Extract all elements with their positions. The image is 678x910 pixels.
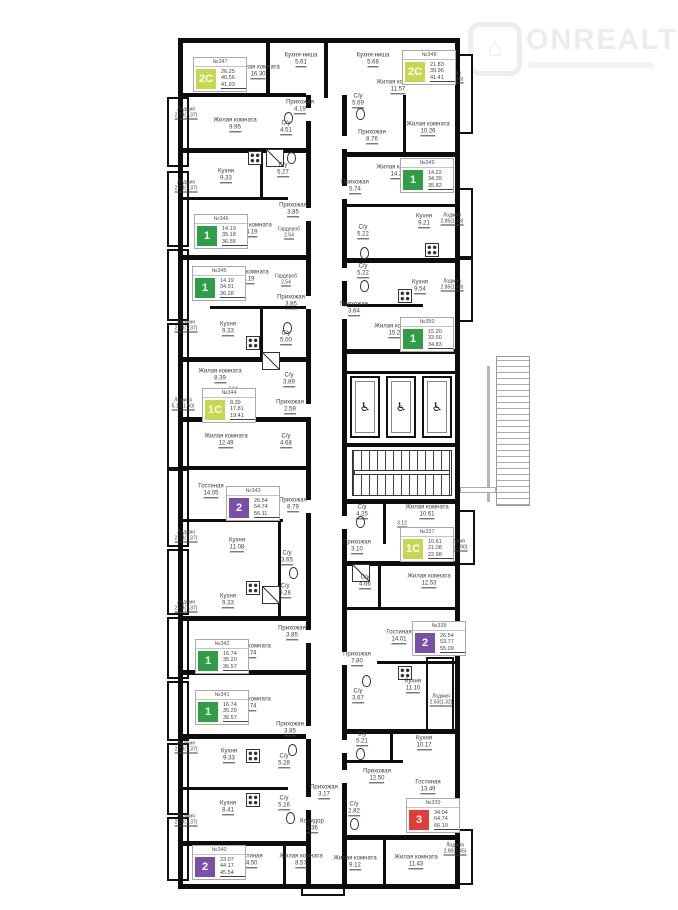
wall (178, 38, 460, 43)
apartment-areas: 14.1935.1836.55 (219, 226, 247, 247)
room-name: С/у (278, 795, 290, 802)
room-name: Кухня (221, 748, 237, 755)
room-area: 4.66 (359, 582, 371, 590)
room-name: С/у (356, 504, 368, 511)
room-name: Кухня (405, 678, 421, 685)
apartment-areas: 26.2540.5641.93 (218, 69, 246, 90)
wall (342, 95, 347, 884)
room-area: 2.59 (284, 407, 296, 415)
room-name: С/у (277, 162, 289, 169)
room-name: Прихожая (341, 179, 369, 186)
apartment-badge[interactable]: №3371С10.6121.0822.98 (400, 527, 454, 562)
door-opening (342, 740, 347, 753)
room-label: Лоджия2.73(1.37) (175, 741, 198, 754)
room-label: Жилая комната8.39 (198, 368, 241, 383)
apartment-areas: 16.7435.2036.57 (220, 651, 248, 672)
room-area: 3.85 (285, 302, 297, 310)
room-area: 8.76 (366, 137, 378, 145)
room-area: 3.65 (281, 558, 293, 566)
room-area: 11.43 (409, 862, 424, 870)
apartment-badge[interactable]: №345114.1934.9136.28 (192, 266, 246, 301)
room-label: Жилая комната9.95 (213, 117, 256, 132)
room-name: Прихожая (276, 721, 304, 728)
room-area: 5.16 (278, 803, 290, 811)
room-label: Прихожая3.10 (343, 539, 371, 554)
room-label: С/у5.21 (356, 731, 368, 746)
apartment-badge[interactable]: №3482С21.8339.9641.41 (402, 50, 456, 85)
room-name: Кухня-ниша (357, 52, 390, 59)
apartment-area-value: 45.54 (220, 870, 245, 878)
room-label: Прихожая3.64 (340, 301, 368, 316)
room-label: Кухня11.08 (229, 537, 245, 552)
apartment-type-badge: 2С (405, 62, 425, 82)
room-area: 5.28 (279, 591, 291, 599)
room-name: С/у (356, 731, 368, 738)
room-name: Гостиная (198, 483, 223, 490)
door-opening (306, 630, 311, 643)
room-area: 2.85(1.43) (441, 219, 464, 226)
room-name: С/у (280, 120, 292, 127)
room-label: Гардероб2.54 (278, 227, 300, 240)
room-name: Жилая комната (333, 855, 376, 862)
toilet-icon (356, 748, 365, 760)
room-name: Прихожая (363, 768, 391, 775)
wall (390, 729, 393, 763)
room-label: Лоджия2.73(1.37) (175, 600, 198, 613)
room-area: 2.73(1.37) (175, 747, 198, 754)
room-area: 2.73(1.37) (175, 820, 198, 827)
room-name: С/у (281, 550, 293, 557)
room-area: 2.73(1.37) (175, 113, 198, 120)
room-area: 5.28 (278, 761, 290, 769)
room-area: 5.69 (352, 101, 364, 109)
room-label: С/у3.65 (281, 550, 293, 565)
room-name: С/у (280, 330, 292, 337)
room-name: С/у (280, 433, 292, 440)
room-area: 3.10 (351, 547, 363, 555)
room-label: С/у5.00 (280, 330, 292, 345)
room-label: Кухня9.33 (220, 593, 236, 608)
apartment-number: №337 (401, 528, 453, 537)
wall (345, 760, 403, 763)
apartment-badge[interactable]: №342116.7435.2036.57 (195, 639, 249, 674)
apartment-badge[interactable]: №339334.0464.7466.19 (406, 798, 460, 833)
room-area: 2.73(1.37) (175, 606, 198, 613)
wall (178, 884, 460, 889)
apartment-area-value: 36.57 (223, 715, 248, 723)
room-area: 9.12 (349, 863, 361, 871)
room-label: Лоджия2.73(1.37) (175, 107, 198, 120)
apartment-areas: 23.0744.1745.54 (217, 857, 245, 878)
room-name: С/у (279, 583, 291, 590)
room-area: 9.33 (220, 176, 232, 184)
apartment-areas: 14.1934.9136.28 (217, 278, 245, 299)
wheelchair-accessible-icon: ♿ (427, 381, 447, 433)
door-opening (306, 726, 311, 739)
wall (183, 616, 306, 621)
apartment-area-value: 35.82 (428, 183, 453, 191)
room-name: Жилая комната (405, 504, 448, 511)
toilet-icon (360, 280, 369, 292)
room-area: 4.68 (280, 441, 292, 449)
room-label: С/у2.82 (348, 801, 360, 816)
apartment-type-badge: 2С (196, 69, 216, 89)
room-name: Кухня-ниша (285, 52, 318, 59)
apartment-areas: 16.7435.2036.57 (220, 702, 248, 723)
room-area: 3.89 (283, 380, 295, 388)
room-name: Прихожая (358, 129, 386, 136)
logo-house-icon: ⌂ (468, 22, 522, 76)
wall (345, 607, 455, 610)
apartment-badge[interactable]: №3441С8.3917.8119.41 (202, 388, 256, 423)
room-label: С/у5.22 (357, 263, 369, 278)
stove-icon (425, 243, 439, 257)
room-name: Прихожая (343, 539, 371, 546)
apartment-areas: 26.5453.7755.09 (437, 633, 465, 654)
room-label: Жилая комната10.26 (406, 121, 449, 136)
apartment-number: №348 (403, 51, 455, 60)
apartment-areas: 21.8339.9641.41 (427, 62, 455, 83)
room-area: 4.25 (356, 512, 368, 520)
room-area: 5.61 (295, 60, 307, 68)
shower-icon (262, 352, 280, 370)
room-name: С/у (283, 372, 295, 379)
apartment-number: №341 (196, 691, 248, 700)
room-label: Лоджия2.63(1.32) (430, 694, 453, 707)
room-name: Прихожая (277, 294, 305, 301)
room-area: 8.57 (295, 861, 307, 869)
wall (183, 148, 306, 153)
room-name: С/у (352, 93, 364, 100)
apartment-area-value: 41.93 (221, 82, 246, 90)
room-area: 2.82 (348, 809, 360, 817)
door-opening (342, 516, 347, 529)
apartment-areas: 26.5454.7456.11 (251, 498, 279, 519)
apartment-type-badge: 1 (198, 702, 218, 722)
room-label: Жилая комната12.49 (204, 433, 247, 448)
room-area: 9.33 (222, 329, 234, 337)
wall (378, 563, 381, 607)
room-area: 8.41 (222, 808, 234, 816)
elevator: ♿ (386, 376, 416, 438)
room-name: Коридор (300, 818, 324, 825)
apartment-areas: 34.0464.7466.19 (431, 810, 459, 831)
room-area: 8.79 (287, 505, 299, 513)
toilet-icon (286, 812, 295, 824)
toilet-icon (289, 567, 298, 579)
room-area: 2.73(1.37) (175, 536, 198, 543)
apartment-area-value: 36.55 (222, 239, 247, 247)
wall (345, 499, 455, 504)
room-name: Кухня (229, 537, 245, 544)
room-name: С/у (357, 263, 369, 270)
room-label: Прихожая3.85 (278, 625, 306, 640)
room-name: С/у (352, 688, 364, 695)
wall (345, 258, 455, 263)
room-label: Прихожая3.85 (277, 294, 305, 309)
room-area: 2.54 (281, 280, 291, 287)
room-area: 12.49 (218, 441, 233, 449)
room-area: 14.01 (391, 637, 406, 645)
room-label: Прихожая3.85 (279, 202, 307, 217)
apartment-badge[interactable]: №3472С26.2540.5641.93 (193, 57, 247, 92)
room-name: С/у (278, 753, 290, 760)
apartment-area-value: 66.19 (434, 823, 459, 831)
room-area: 13.49 (420, 787, 435, 795)
wall (183, 466, 306, 470)
apartment-type-badge: 2 (229, 498, 249, 518)
room-label: Прихожая3.17 (310, 784, 338, 799)
wall (178, 38, 183, 889)
room-name: Прихожая (310, 784, 338, 791)
wall (377, 661, 455, 664)
apartment-areas: 10.6121.0822.98 (425, 539, 453, 560)
apartment-area-value: 19.41 (230, 413, 255, 421)
apartment-type-badge: 1 (197, 226, 217, 246)
room-area: 12.53 (421, 581, 436, 589)
room-area: 11.57 (391, 87, 406, 95)
room-label: Кухня11.10 (405, 678, 421, 693)
apartment-area-value: 55.09 (440, 646, 465, 654)
room-area: 5.21 (356, 739, 368, 747)
room-area: 11.10 (406, 686, 421, 694)
room-area: 3.85 (287, 210, 299, 218)
room-name: Кухня (416, 213, 432, 220)
room-label: С/у5.28 (278, 753, 290, 768)
room-area: 5.68 (367, 60, 379, 68)
room-label: Кухня-ниша5.68 (357, 52, 390, 67)
room-label: С/у4.51 (280, 120, 292, 135)
apartment-type-badge: 3 (409, 810, 429, 830)
room-label: Прихожая7.80 (343, 651, 371, 666)
room-area: 9.33 (223, 756, 235, 764)
apartment-areas: 14.2234.3935.82 (425, 170, 453, 191)
apartment-area-value: 34.83 (428, 342, 453, 350)
apartment-area-value: 22.98 (428, 552, 453, 560)
apartment-badge[interactable]: №350115.2033.6034.83 (400, 317, 454, 352)
apartment-badge[interactable]: №340223.0744.1745.54 (192, 845, 246, 880)
room-area: 10.61 (419, 512, 434, 520)
room-area: 5.74 (349, 187, 361, 195)
room-label: Прихожая3.85 (276, 721, 304, 736)
toilet-icon (360, 247, 369, 259)
room-area: 10.26 (420, 129, 435, 137)
room-label: Лоджия2.90(1.45) (444, 843, 467, 856)
apartment-number: №350 (401, 318, 453, 327)
room-area: 8.39 (214, 376, 226, 384)
apartment-number: №338 (413, 622, 465, 631)
room-area: 5.19(1.60) (172, 404, 195, 411)
room-name: Кухня (416, 735, 432, 742)
elevator-block: ♿♿♿ (347, 374, 455, 442)
apartment-type-badge: 1 (195, 278, 215, 298)
room-area: 3.67 (352, 696, 364, 704)
room-label: Жилая комната12.53 (407, 573, 450, 588)
stove-icon (246, 581, 260, 595)
room-area: 3.85 (284, 729, 296, 737)
room-name: Кухня (220, 800, 236, 807)
room-label: Кухня8.41 (220, 800, 236, 815)
stove-icon (398, 289, 412, 303)
apartment-number: №347 (194, 58, 246, 67)
room-area: 2.73(1.37) (175, 326, 198, 333)
room-label: С/у5.22 (357, 224, 369, 239)
room-label: Прихожая5.74 (341, 179, 369, 194)
door-opening (342, 136, 347, 149)
apartment-number: №346 (195, 215, 247, 224)
room-label: Гостиная13.49 (415, 779, 440, 794)
apartment-badge[interactable]: №341116.7435.2036.57 (195, 690, 249, 725)
room-area: 2.54 (284, 233, 294, 240)
apartment-number: №342 (196, 640, 248, 649)
room-label: Кухня9.21 (416, 213, 432, 228)
apartment-number: №344 (203, 389, 255, 398)
logo: ⌂ ONREALT (462, 20, 667, 78)
apartment-badge[interactable]: №338226.5453.7755.09 (412, 621, 466, 656)
apartment-badge[interactable]: №346114.1935.1836.55 (194, 214, 248, 249)
room-name: Жилая комната (394, 854, 437, 861)
room-name: Жилая комната (204, 433, 247, 440)
apartment-areas: 8.3917.8119.41 (227, 400, 255, 421)
room-label: С/у5.28 (279, 583, 291, 598)
apartment-type-badge: 1 (198, 651, 218, 671)
room-label: С/у3.89 (283, 372, 295, 387)
room-name: Жилая комната (407, 573, 450, 580)
wall (345, 835, 455, 840)
stove-icon (246, 749, 260, 763)
wall (183, 197, 288, 200)
apartment-type-badge: 2 (195, 857, 215, 877)
toilet-icon (350, 818, 359, 830)
room-label: С/у4.68 (280, 433, 292, 448)
external-stair-link (460, 487, 496, 493)
room-name: Прихожая (340, 301, 368, 308)
apartment-type-badge: 1 (403, 329, 423, 349)
room-area: 11.08 (230, 545, 245, 553)
stove-icon (248, 151, 262, 165)
room-area: 9.95 (229, 125, 241, 133)
logo-tagline (528, 62, 654, 68)
wheelchair-accessible-icon: ♿ (355, 381, 375, 433)
wheelchair-accessible-icon: ♿ (391, 381, 411, 433)
room-area: 5.27 (277, 170, 289, 178)
room-label: Кухня9.33 (221, 748, 237, 763)
room-area: 2.63(1.32) (430, 700, 453, 707)
room-name: Прихожая (276, 399, 304, 406)
room-label: Жилая комната11.43 (394, 854, 437, 869)
apartment-badge[interactable]: №343226.5454.7456.11 (226, 486, 280, 521)
room-label: Лоджия2.85(1.43) (441, 213, 464, 226)
room-name: Кухня (218, 168, 234, 175)
wall (183, 255, 306, 260)
apartment-number: №345 (193, 267, 245, 276)
apartment-areas: 15.2033.6034.83 (425, 329, 453, 350)
room-area: 9.33 (222, 601, 234, 609)
room-label: Кухня9.54 (412, 279, 428, 294)
apartment-area-value: 41.41 (430, 75, 455, 83)
room-name: Прихожая (286, 99, 314, 106)
room-label: Кухня10.17 (416, 735, 432, 750)
room-name: С/у (348, 801, 360, 808)
room-label: С/у4.25 (356, 504, 368, 519)
external-stair-rail (487, 366, 490, 502)
room-label: Кухня-ниша5.61 (285, 52, 318, 67)
wall (383, 835, 386, 885)
room-label: Прихожая8.76 (358, 129, 386, 144)
room-area: 4.19 (294, 107, 306, 115)
wall (183, 93, 306, 97)
room-area: 4.36 (306, 826, 318, 834)
apartment-badge[interactable]: №349114.2234.3935.82 (400, 158, 454, 193)
door-opening (342, 770, 347, 783)
room-label: Прихожая4.19 (286, 99, 314, 114)
door-opening (306, 404, 311, 417)
room-label: Жилая комната9.12 (333, 855, 376, 870)
room-area: 2.90(1.45) (444, 849, 467, 856)
room-area: 10.17 (416, 743, 431, 751)
room-area: 16.30 (250, 72, 265, 80)
room-area: 5.22 (357, 232, 369, 240)
room-label: Лоджия5.19(1.60) (172, 398, 195, 411)
room-area: 3.17 (318, 792, 330, 800)
room-label: Прихожая2.59 (276, 399, 304, 414)
shower-icon (262, 586, 280, 604)
room-label: Кухня9.33 (218, 168, 234, 183)
room-name: Жилая комната (406, 121, 449, 128)
staircase-rail (354, 470, 450, 475)
toilet-icon (356, 108, 365, 120)
room-area: 5.00 (280, 338, 292, 346)
room-label: С/у3.67 (352, 688, 364, 703)
room-area: 7.80 (351, 659, 363, 667)
room-area: 12.50 (369, 776, 384, 784)
room-label: Коридор4.36 (300, 818, 324, 833)
door-opening (342, 268, 347, 281)
wall (345, 204, 455, 207)
room-label: С/у5.27 (277, 162, 289, 177)
room-area: 9.21 (418, 221, 430, 229)
wall (455, 38, 460, 889)
room-label: Жилая комната8.57 (279, 853, 322, 868)
room-label: С/у5.69 (352, 93, 364, 108)
room-name: Прихожая (278, 625, 306, 632)
room-area: 2.85(1.43) (441, 285, 464, 292)
room-area: 2.73(1.37) (175, 186, 198, 193)
room-label: Гардероб2.54 (275, 274, 297, 287)
room-name: Прихожая (279, 202, 307, 209)
room-label: Лоджия2.73(1.37) (175, 814, 198, 827)
stove-icon (246, 336, 260, 350)
room-name: С/у (359, 574, 371, 581)
room-area: 4.51 (280, 128, 292, 136)
wall (324, 38, 328, 98)
wall (183, 787, 288, 790)
room-name: Жилая комната (198, 368, 241, 375)
apartment-type-badge: 1С (205, 400, 225, 420)
room-label: Кухня9.33 (220, 321, 236, 336)
apartment-number: №343 (227, 487, 279, 496)
wall (345, 443, 455, 447)
wall (183, 357, 306, 362)
room-name: Гостиная (386, 629, 411, 636)
room-label: Жилая комната10.61 (405, 504, 448, 519)
room-name: Кухня (412, 279, 428, 286)
room-label: Лоджия2.73(1.37) (175, 320, 198, 333)
room-name: Прихожая (343, 651, 371, 658)
apartment-number: №349 (401, 159, 453, 168)
room-label: Лоджия2.73(1.37) (175, 530, 198, 543)
apartment-area-value: 36.57 (223, 664, 248, 672)
